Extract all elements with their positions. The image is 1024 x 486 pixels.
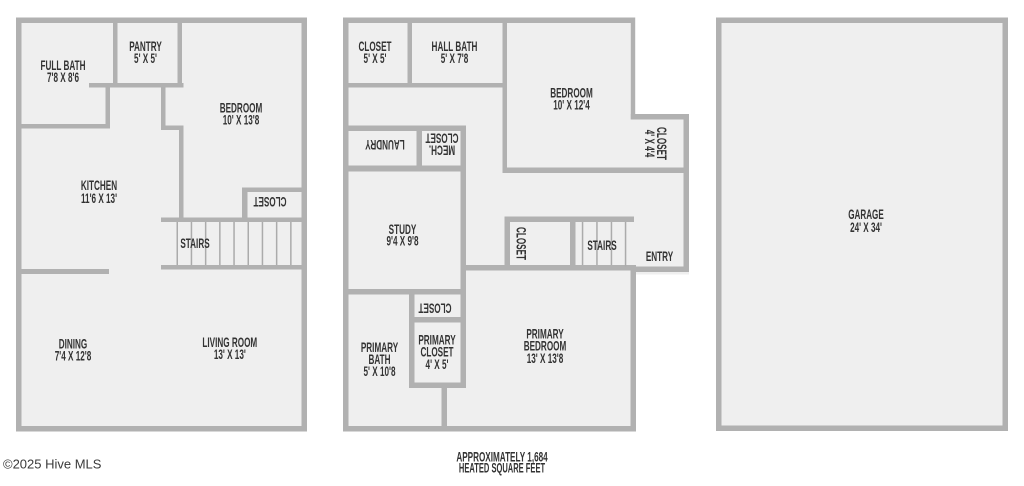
svg-text:5' X 7'8: 5' X 7'8: [441, 52, 468, 67]
svg-text:5' X 5': 5' X 5': [134, 52, 157, 67]
svg-text:24' X 34': 24' X 34': [850, 221, 882, 236]
svg-text:5' X 10'8: 5' X 10'8: [364, 365, 396, 380]
svg-text:9'4 X 9'8: 9'4 X 9'8: [387, 235, 419, 250]
svg-text:4' X 4'4: 4' X 4'4: [641, 130, 656, 158]
svg-text:©2025 Hive MLS: ©2025 Hive MLS: [3, 457, 102, 472]
svg-text:CLOSET: CLOSET: [513, 227, 528, 260]
svg-text:CLOSET: CLOSET: [425, 130, 458, 145]
svg-text:11'6 X 13': 11'6 X 13': [81, 192, 117, 207]
svg-text:HEATED SQUARE FEET: HEATED SQUARE FEET: [459, 461, 545, 476]
svg-text:10' X 13'8: 10' X 13'8: [223, 113, 260, 128]
svg-text:10' X 12'4: 10' X 12'4: [553, 99, 590, 114]
svg-text:13' X 13': 13' X 13': [214, 348, 246, 363]
svg-text:7'8 X 8'6: 7'8 X 8'6: [47, 71, 79, 86]
svg-text:STAIRS: STAIRS: [587, 239, 617, 254]
svg-text:ENTRY: ENTRY: [646, 250, 674, 265]
svg-text:5' X 5': 5' X 5': [364, 52, 387, 67]
svg-text:STAIRS: STAIRS: [180, 237, 210, 252]
svg-text:4' X 5': 4' X 5': [426, 358, 449, 373]
svg-text:LAUNDRY: LAUNDRY: [365, 136, 405, 151]
svg-text:7'4 X 12'8: 7'4 X 12'8: [55, 349, 92, 364]
svg-text:CLOSET: CLOSET: [253, 193, 286, 208]
svg-text:CLOSET: CLOSET: [418, 300, 451, 315]
svg-text:13' X 13'8: 13' X 13'8: [527, 352, 564, 367]
